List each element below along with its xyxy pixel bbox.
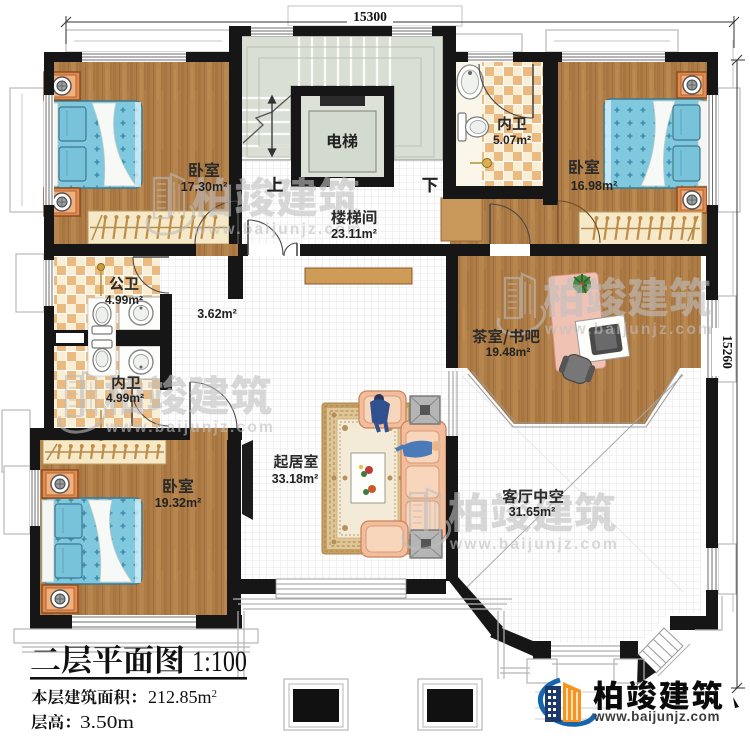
- svg-text:33.18m²: 33.18m²: [272, 472, 319, 486]
- svg-text:17.30m²: 17.30m²: [181, 180, 228, 194]
- svg-text:www.baijunjz.com: www.baijunjz.com: [544, 321, 714, 338]
- svg-text:15260: 15260: [720, 335, 735, 369]
- svg-text:23.11m²: 23.11m²: [331, 227, 377, 241]
- svg-text:1:100: 1:100: [192, 645, 247, 678]
- svg-text:31.65m²: 31.65m²: [509, 505, 556, 519]
- svg-text:16.98m²: 16.98m²: [571, 179, 618, 193]
- svg-text:19.32m²: 19.32m²: [155, 496, 202, 510]
- svg-text:5.07m²: 5.07m²: [493, 133, 531, 147]
- svg-text:4.99m²: 4.99m²: [106, 391, 144, 405]
- svg-text:www.baijunjz.com: www.baijunjz.com: [593, 709, 720, 724]
- svg-text:3.62m²: 3.62m²: [197, 307, 237, 321]
- svg-text:3.50m: 3.50m: [80, 712, 134, 732]
- svg-text:www.baijunjz.com: www.baijunjz.com: [449, 536, 619, 553]
- svg-text:www.baijunjz.com: www.baijunjz.com: [105, 419, 275, 436]
- svg-text:19.48m²: 19.48m²: [486, 345, 531, 359]
- svg-text:15300: 15300: [353, 9, 387, 24]
- svg-text:212.85m2: 212.85m2: [148, 687, 217, 707]
- svg-text:4.99m²: 4.99m²: [105, 293, 143, 307]
